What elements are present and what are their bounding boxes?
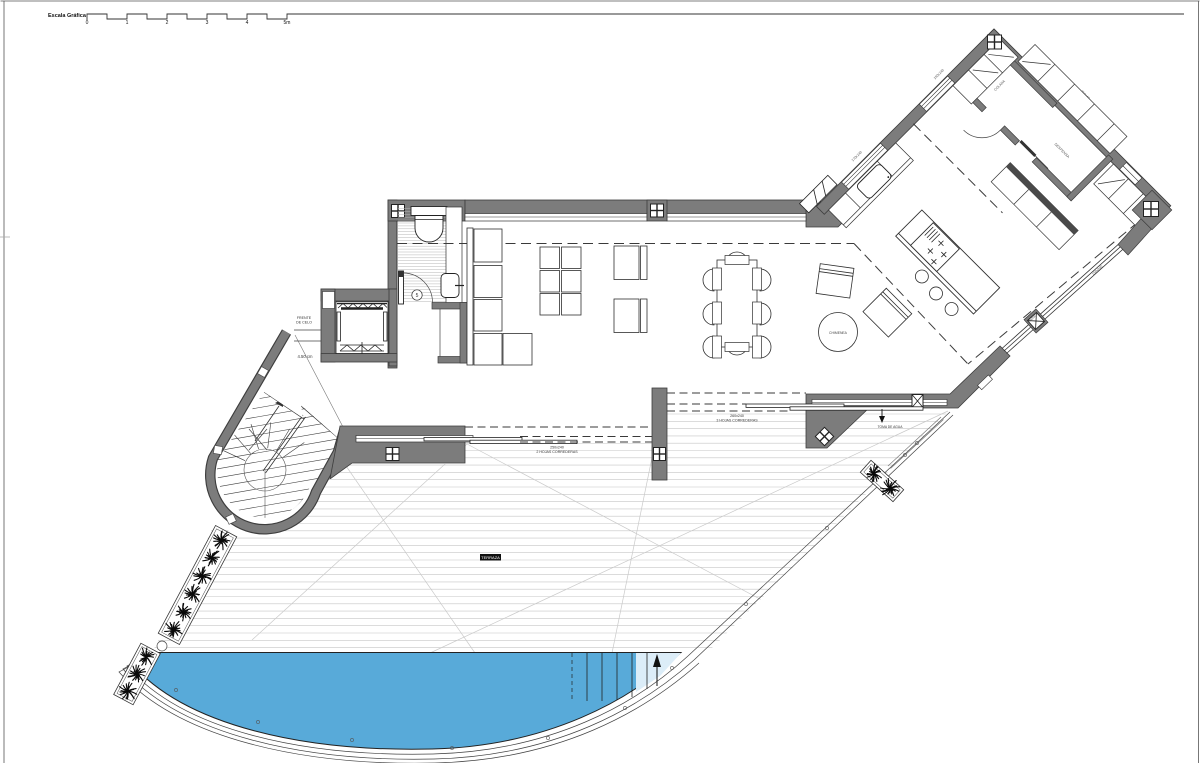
svg-text:1: 1 <box>126 20 129 26</box>
svg-text:5: 5 <box>416 293 419 299</box>
svg-text:TERRAZA: TERRAZA <box>481 555 500 560</box>
svg-text:5m: 5m <box>284 20 291 26</box>
svg-text:DE CELO: DE CELO <box>296 321 312 325</box>
svg-text:CHIMENEA: CHIMENEA <box>829 331 848 335</box>
svg-text:250x240: 250x240 <box>550 446 564 450</box>
svg-text:FRENTE: FRENTE <box>297 316 312 320</box>
svg-text:4: 4 <box>246 20 249 26</box>
svg-text:TOMA DE AGUA: TOMA DE AGUA <box>878 425 904 429</box>
svg-text:2: 2 <box>166 20 169 26</box>
svg-text:3 HOJAS CORREDERAS: 3 HOJAS CORREDERAS <box>716 419 758 423</box>
svg-text:Escala Gráfica: Escala Gráfica <box>48 13 87 19</box>
svg-text:260x240: 260x240 <box>730 414 744 418</box>
svg-text:2 HOJAS CORREDERAS: 2 HOJAS CORREDERAS <box>536 450 578 454</box>
svg-text:0: 0 <box>86 20 89 26</box>
svg-text:3: 3 <box>206 20 209 26</box>
svg-text:4.50 cm: 4.50 cm <box>298 354 313 359</box>
